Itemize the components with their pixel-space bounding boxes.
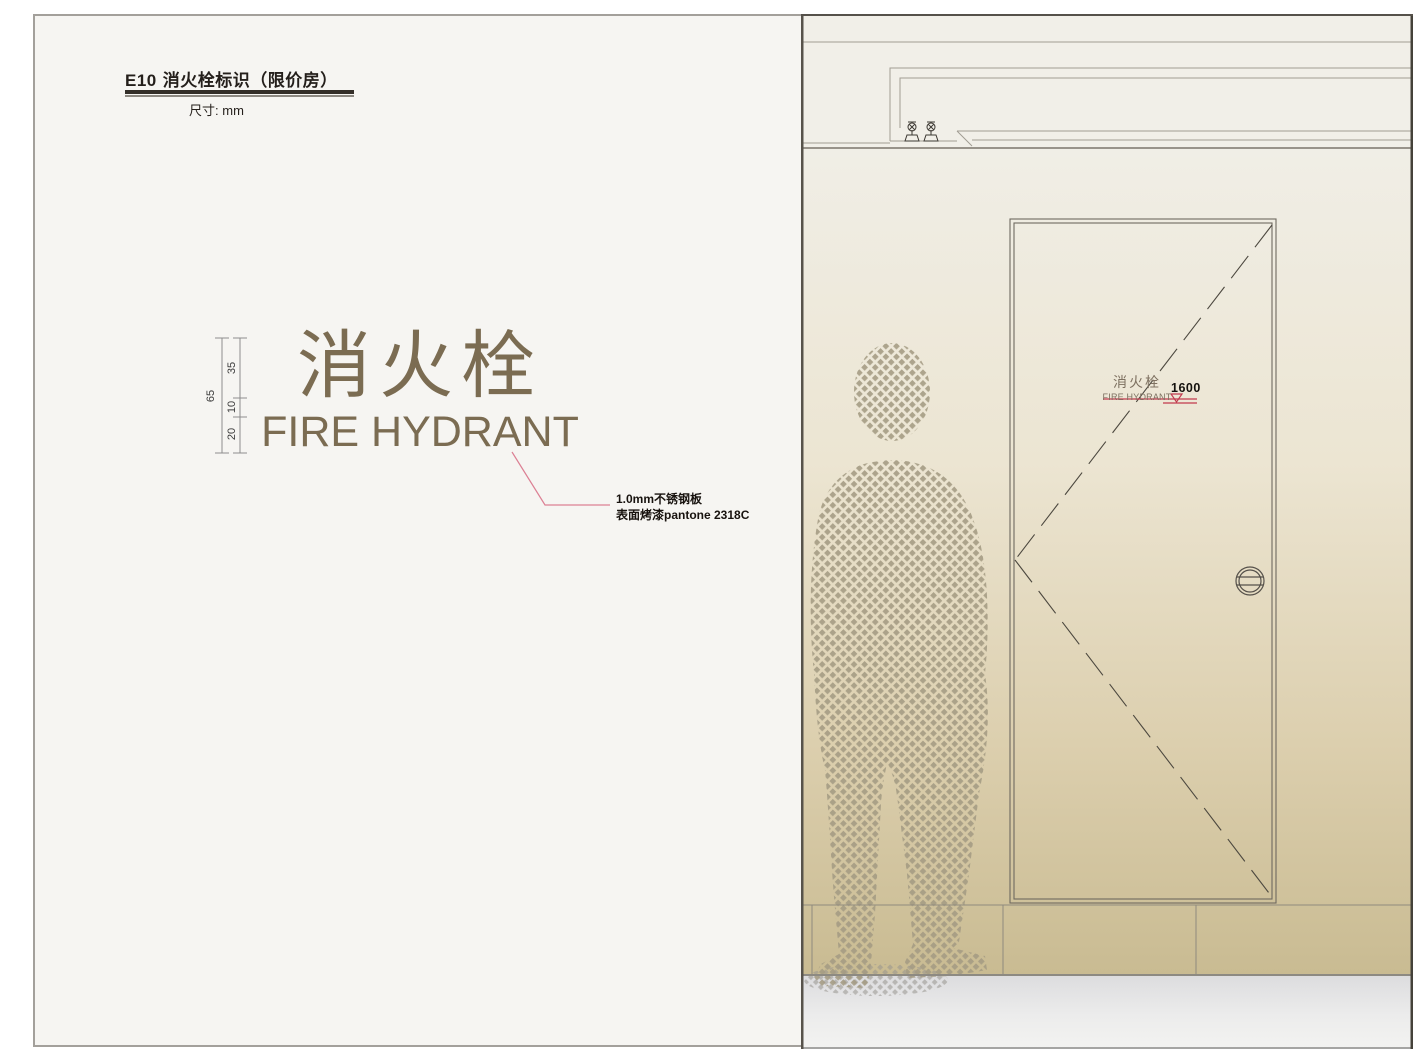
- title-underline-thick: [125, 90, 354, 94]
- title-underline-thin: [125, 95, 354, 97]
- door-sign-cn: 消火栓: [1097, 374, 1177, 390]
- sign-code: E10: [125, 71, 157, 90]
- sprinkler-icon: [924, 122, 938, 141]
- person-silhouette: [811, 343, 988, 988]
- drawing-right-edge: [1411, 14, 1414, 1049]
- sign-title-text: 消火栓标识（限价房）: [163, 71, 338, 90]
- sign-artwork-en: FIRE HYDRANT: [240, 409, 600, 455]
- design-sheet: E10消火栓标识（限价房） 尺寸: mm 消火栓 FIRE HYDRANT 1.…: [0, 0, 1417, 1063]
- door-handle: [1236, 567, 1264, 595]
- drawing-top-edge: [801, 14, 1413, 16]
- unit-label: 尺寸: mm: [164, 100, 269, 119]
- title-underline: [125, 90, 354, 97]
- mounting-height-label: 1600: [1171, 381, 1201, 395]
- sprinkler-icon: [905, 122, 919, 141]
- door-swing-dashes: [1015, 225, 1272, 897]
- page-title: E10消火栓标识（限价房）: [125, 66, 338, 91]
- elevation-drawing: 消火栓 FIRE HYDRANT 1600: [801, 14, 1413, 1049]
- material-annotation-line2: 表面烤漆pantone 2318C: [616, 508, 749, 524]
- material-annotation: 1.0mm不锈钢板 表面烤漆pantone 2318C: [616, 492, 749, 523]
- door-sign-en: FIRE HYDRANT: [1092, 392, 1182, 402]
- sign-artwork-cn: 消火栓: [240, 329, 600, 403]
- drawing-left-edge: [801, 14, 804, 1049]
- door-frame: [1010, 219, 1276, 903]
- material-annotation-line1: 1.0mm不锈钢板: [616, 492, 749, 508]
- ceiling-cove: [801, 42, 1413, 146]
- elevation-linework: [801, 14, 1413, 1049]
